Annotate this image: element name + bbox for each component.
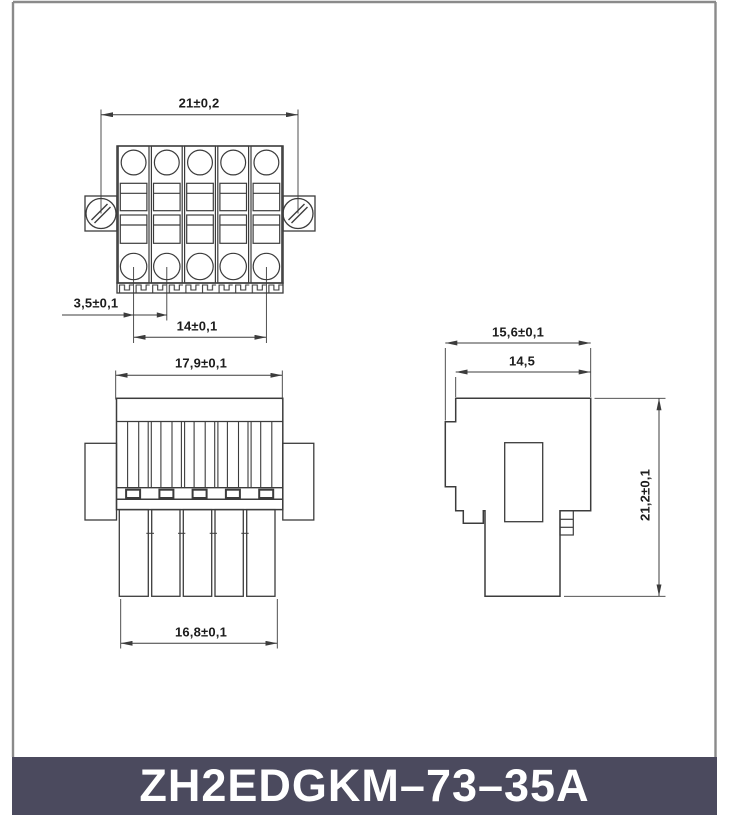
latch-teeth xyxy=(560,511,573,535)
solder-legs xyxy=(119,510,275,597)
right-flange xyxy=(283,443,314,520)
left-flange xyxy=(85,443,117,520)
terminal-columns xyxy=(118,146,282,283)
dim-label-overall-depth: 15,6±0,1 xyxy=(490,326,546,339)
right-flange xyxy=(283,196,315,231)
technical-drawing xyxy=(0,0,732,831)
dim-label-body-width: 17,9±0,1 xyxy=(173,357,229,370)
dim-label-pin-span: 14±0,1 xyxy=(175,320,220,333)
serration-strip xyxy=(117,283,283,293)
datasheet-page: 21±0,2 3,5±0,1 14±0,1 17,9±0,1 16,8±0,1 … xyxy=(0,0,732,831)
product-model-number: ZH2EDGKM–73–35A xyxy=(139,763,589,808)
body-outline xyxy=(117,398,283,509)
dim-label-overall-width: 21±0,2 xyxy=(177,97,222,110)
side-view xyxy=(445,343,665,596)
front-view xyxy=(85,371,314,649)
title-bar: ZH2EDGKM–73–35A xyxy=(12,757,717,815)
dim-label-pitch: 3,5±0,1 xyxy=(72,297,121,310)
dim-label-overall-height: 21,2±0,1 xyxy=(639,467,652,523)
latch-band xyxy=(126,490,273,498)
side-view-dimensions xyxy=(445,343,665,596)
dim-label-body-depth: 14,5 xyxy=(507,355,537,368)
dim-label-leg-row-width: 16,8±0,1 xyxy=(173,626,229,639)
actuation-slot xyxy=(505,443,543,522)
page-frame xyxy=(13,2,716,757)
rib-lines xyxy=(128,422,272,488)
